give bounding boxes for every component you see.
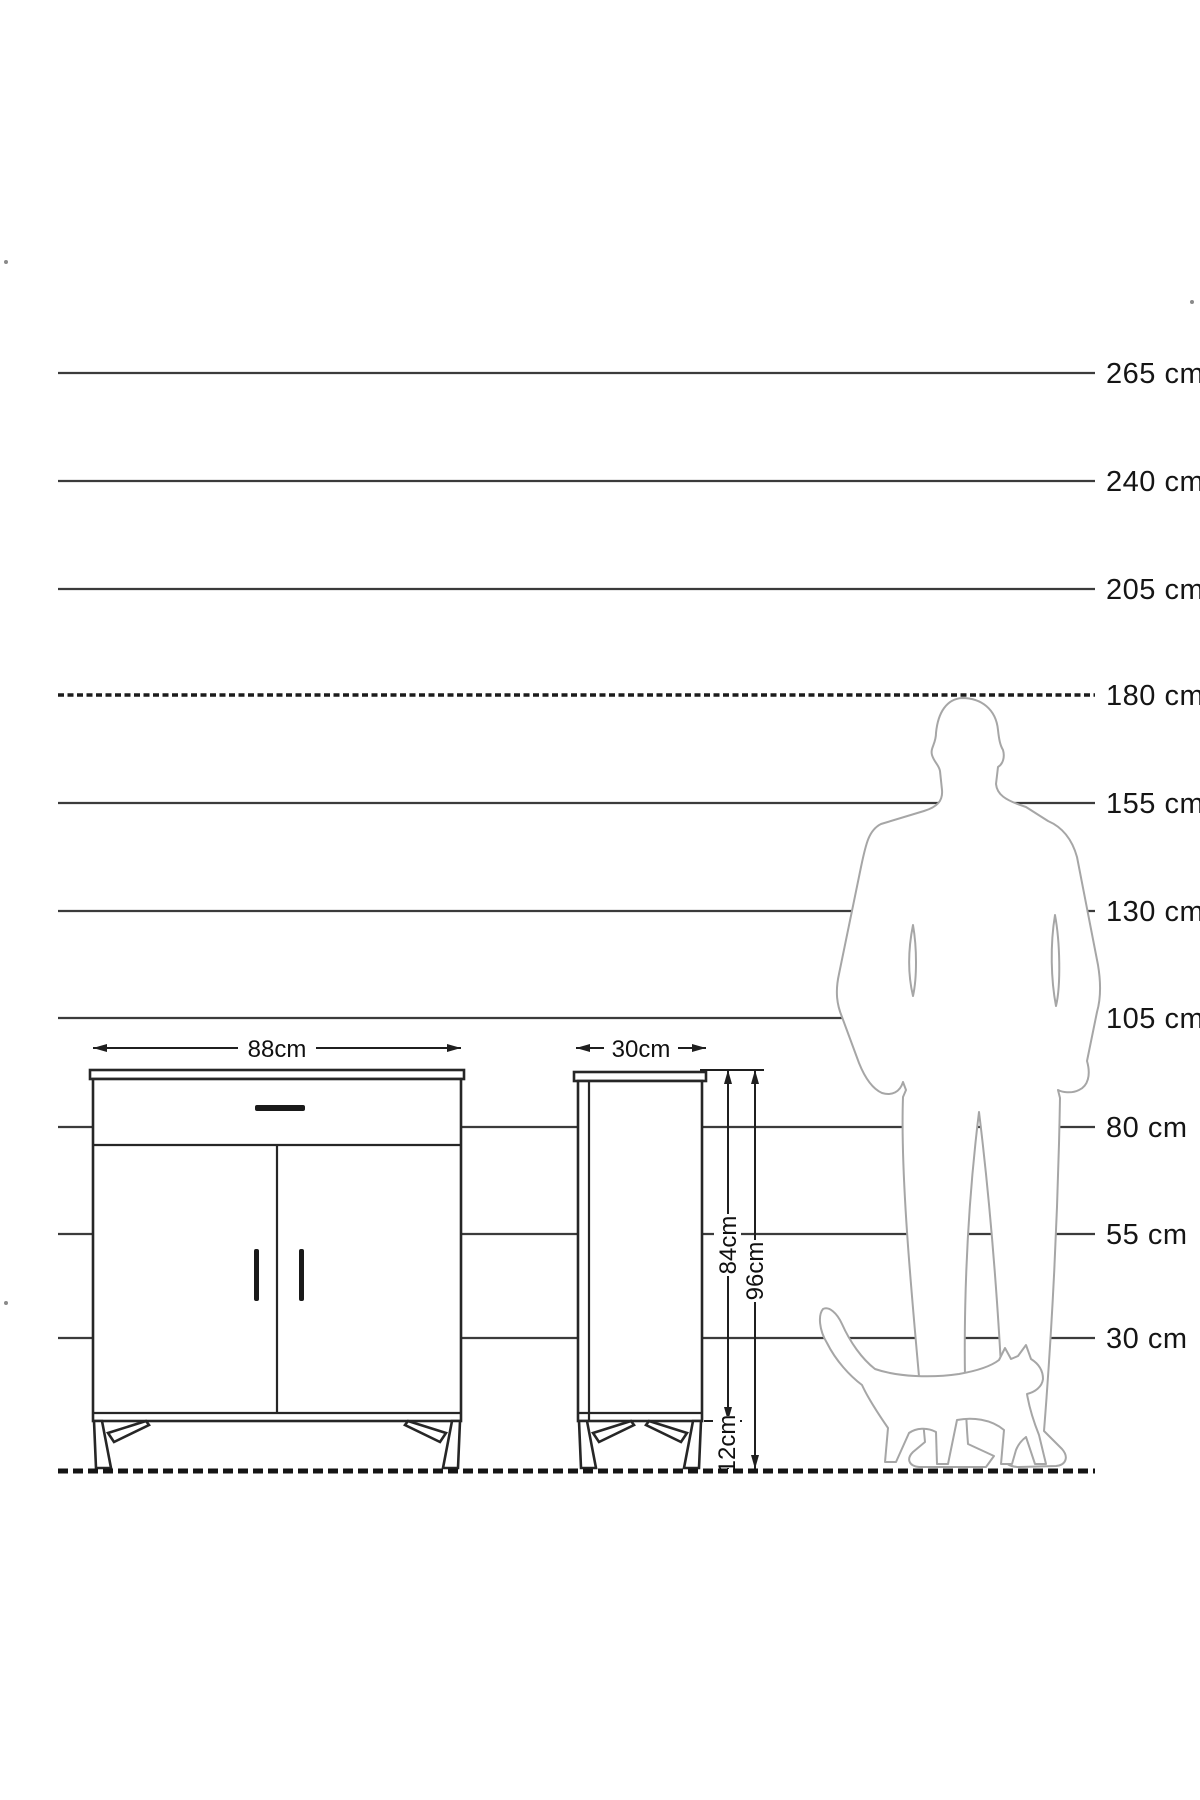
right-door-handle bbox=[299, 1249, 304, 1301]
arrow-up-icon bbox=[751, 1070, 759, 1084]
body-height-label: 84cm bbox=[715, 1216, 742, 1275]
side-top-panel bbox=[574, 1072, 706, 1081]
speck-dot bbox=[4, 260, 8, 264]
side-body bbox=[578, 1081, 702, 1421]
man-left-arm-slit bbox=[909, 925, 916, 996]
cabinet-front-view bbox=[90, 1070, 464, 1468]
ruler-label-240: 240 cm bbox=[1106, 466, 1200, 498]
front-right-leg-brace bbox=[405, 1421, 446, 1442]
left-door-handle bbox=[254, 1249, 259, 1301]
total-height-label: 96cm bbox=[742, 1242, 769, 1301]
diagram-canvas: 265 cm 240 cm 205 cm 180 cm 155 cm 130 c… bbox=[0, 0, 1200, 1800]
side-depth-label: 30cm bbox=[612, 1036, 671, 1063]
ruler-labels: 265 cm 240 cm 205 cm 180 cm 155 cm 130 c… bbox=[1106, 358, 1200, 1355]
dimension-diagram-page: { "diagram": { "kind": "furniture-height… bbox=[0, 0, 1200, 1800]
man-outline bbox=[837, 698, 1100, 1467]
ruler-label-130: 130 cm bbox=[1106, 896, 1200, 928]
front-top-panel bbox=[90, 1070, 464, 1079]
front-right-leg bbox=[443, 1421, 460, 1468]
man-silhouette bbox=[837, 698, 1100, 1467]
ruler-label-30: 30 cm bbox=[1106, 1323, 1187, 1355]
ruler-label-80: 80 cm bbox=[1106, 1112, 1187, 1144]
arrow-left-icon bbox=[93, 1044, 107, 1052]
side-right-leg bbox=[684, 1421, 701, 1468]
arrow-up-icon bbox=[724, 1070, 732, 1084]
front-left-leg-brace bbox=[108, 1421, 149, 1442]
ruler-label-180: 180 cm bbox=[1106, 680, 1200, 712]
leg-height-label: 12cm bbox=[714, 1415, 741, 1474]
ruler-label-105: 105 cm bbox=[1106, 1003, 1200, 1035]
arrow-right-icon bbox=[692, 1044, 706, 1052]
side-right-leg-brace bbox=[646, 1421, 687, 1442]
arrow-down-icon bbox=[751, 1455, 759, 1469]
speck-dot bbox=[1190, 300, 1194, 304]
speck-dot bbox=[4, 1301, 8, 1305]
cabinet-side-view bbox=[574, 1072, 706, 1468]
ruler-label-155: 155 cm bbox=[1106, 788, 1200, 820]
ruler-label-205: 205 cm bbox=[1106, 574, 1200, 606]
side-left-leg-brace bbox=[593, 1421, 634, 1442]
front-width-label: 88cm bbox=[248, 1036, 307, 1063]
front-left-leg bbox=[94, 1421, 111, 1468]
ruler-label-55: 55 cm bbox=[1106, 1219, 1187, 1251]
arrow-right-icon bbox=[447, 1044, 461, 1052]
drawer-handle bbox=[255, 1105, 305, 1111]
ruler-label-265: 265 cm bbox=[1106, 358, 1200, 390]
side-left-leg bbox=[579, 1421, 596, 1468]
arrow-left-icon bbox=[576, 1044, 590, 1052]
